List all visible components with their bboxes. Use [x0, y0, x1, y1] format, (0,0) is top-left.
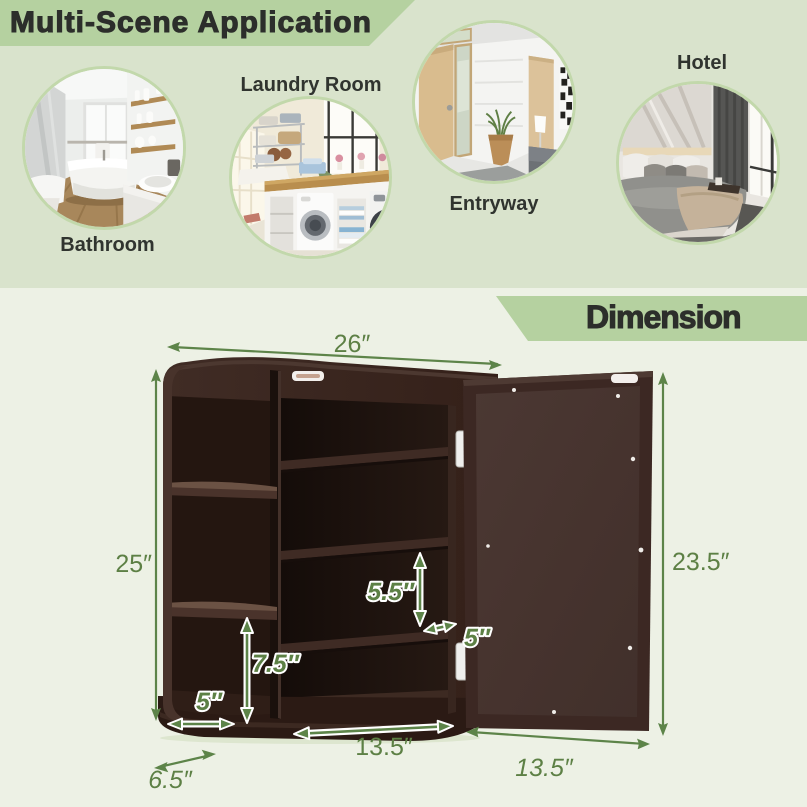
svg-text:25″: 25″: [115, 550, 152, 578]
svg-text:13.5″: 13.5″: [355, 733, 413, 761]
svg-text:5″: 5″: [464, 624, 491, 652]
svg-text:5″: 5″: [196, 688, 223, 716]
svg-text:7.5″: 7.5″: [252, 650, 300, 678]
svg-text:5.5″: 5.5″: [367, 578, 415, 606]
svg-text:26″: 26″: [334, 330, 371, 358]
svg-text:13.5″: 13.5″: [515, 754, 574, 782]
svg-text:23.5″: 23.5″: [672, 548, 730, 576]
svg-text:6.5″: 6.5″: [148, 766, 193, 794]
